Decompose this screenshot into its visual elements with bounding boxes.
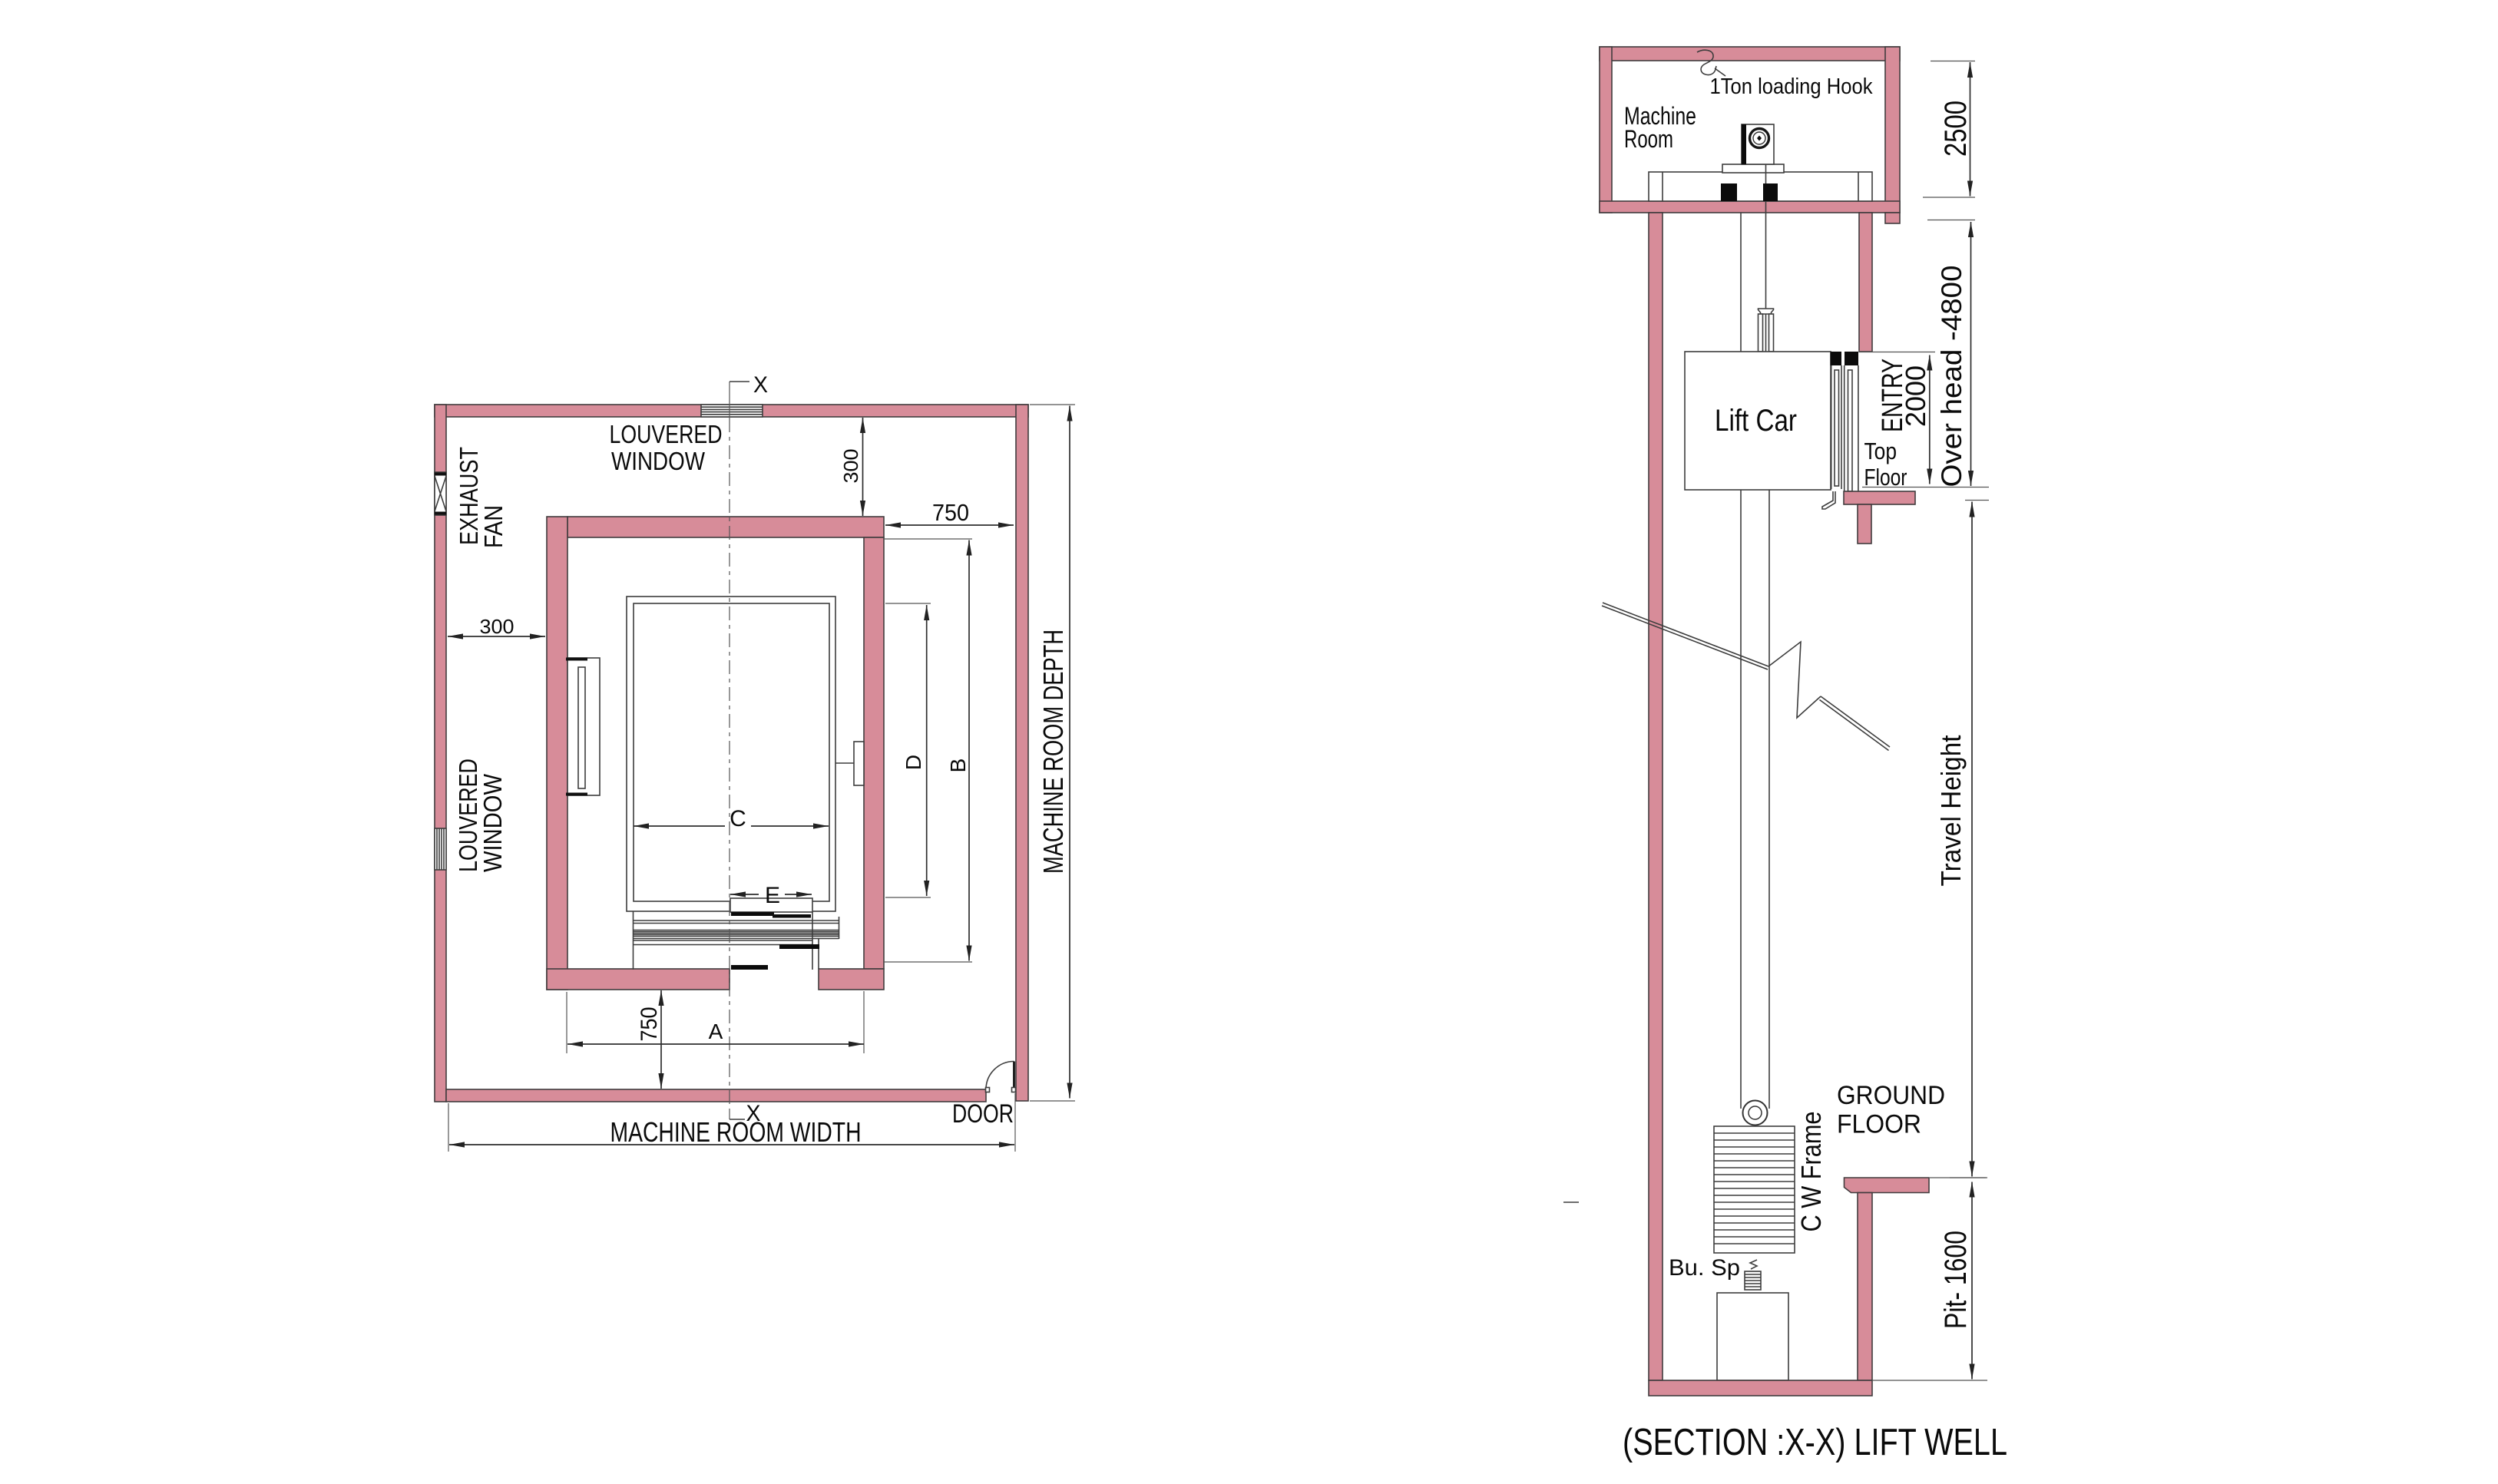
svg-text:300: 300 — [480, 615, 514, 638]
svg-text:WINDOW: WINDOW — [478, 773, 507, 872]
svg-text:Lift Car: Lift Car — [1715, 404, 1797, 438]
svg-text:300: 300 — [839, 449, 862, 484]
svg-text:1Ton loading Hook: 1Ton loading Hook — [1710, 74, 1873, 99]
svg-text:B: B — [946, 759, 970, 773]
svg-text:E: E — [765, 883, 780, 908]
svg-text:A: A — [709, 1020, 723, 1043]
svg-text:C W Frame: C W Frame — [1795, 1112, 1827, 1232]
svg-text:Room: Room — [1624, 125, 1673, 153]
svg-text:D: D — [902, 755, 925, 770]
svg-text:(SECTION :X-X) LIFT WELL: (SECTION :X-X) LIFT WELL — [1623, 1422, 2007, 1463]
svg-text:FAN: FAN — [479, 505, 508, 548]
svg-text:2000: 2000 — [1900, 365, 1931, 427]
svg-text:Floor: Floor — [1864, 464, 1907, 491]
svg-text:Over head -4800: Over head -4800 — [1936, 266, 1967, 488]
svg-text:Travel Height: Travel Height — [1935, 735, 1967, 887]
svg-text:MACHINE ROOM DEPTH: MACHINE ROOM DEPTH — [1037, 630, 1069, 874]
svg-text:750: 750 — [637, 1007, 662, 1042]
svg-text:FLOOR: FLOOR — [1837, 1110, 1921, 1139]
svg-text:Pit- 1600: Pit- 1600 — [1939, 1231, 1973, 1329]
svg-text:GROUND: GROUND — [1837, 1081, 1945, 1110]
svg-text:X: X — [753, 372, 768, 398]
svg-text:C: C — [730, 806, 746, 831]
svg-text:MACHINE ROOM WIDTH: MACHINE ROOM WIDTH — [610, 1116, 862, 1148]
svg-text:LOUVERED: LOUVERED — [610, 420, 723, 448]
svg-text:Bu. Sp: Bu. Sp — [1669, 1255, 1740, 1281]
svg-text:Top: Top — [1864, 438, 1897, 464]
svg-text:750: 750 — [932, 499, 969, 526]
svg-text:DOOR: DOOR — [952, 1099, 1014, 1129]
svg-text:WINDOW: WINDOW — [611, 447, 706, 475]
svg-text:2500: 2500 — [1939, 101, 1973, 157]
